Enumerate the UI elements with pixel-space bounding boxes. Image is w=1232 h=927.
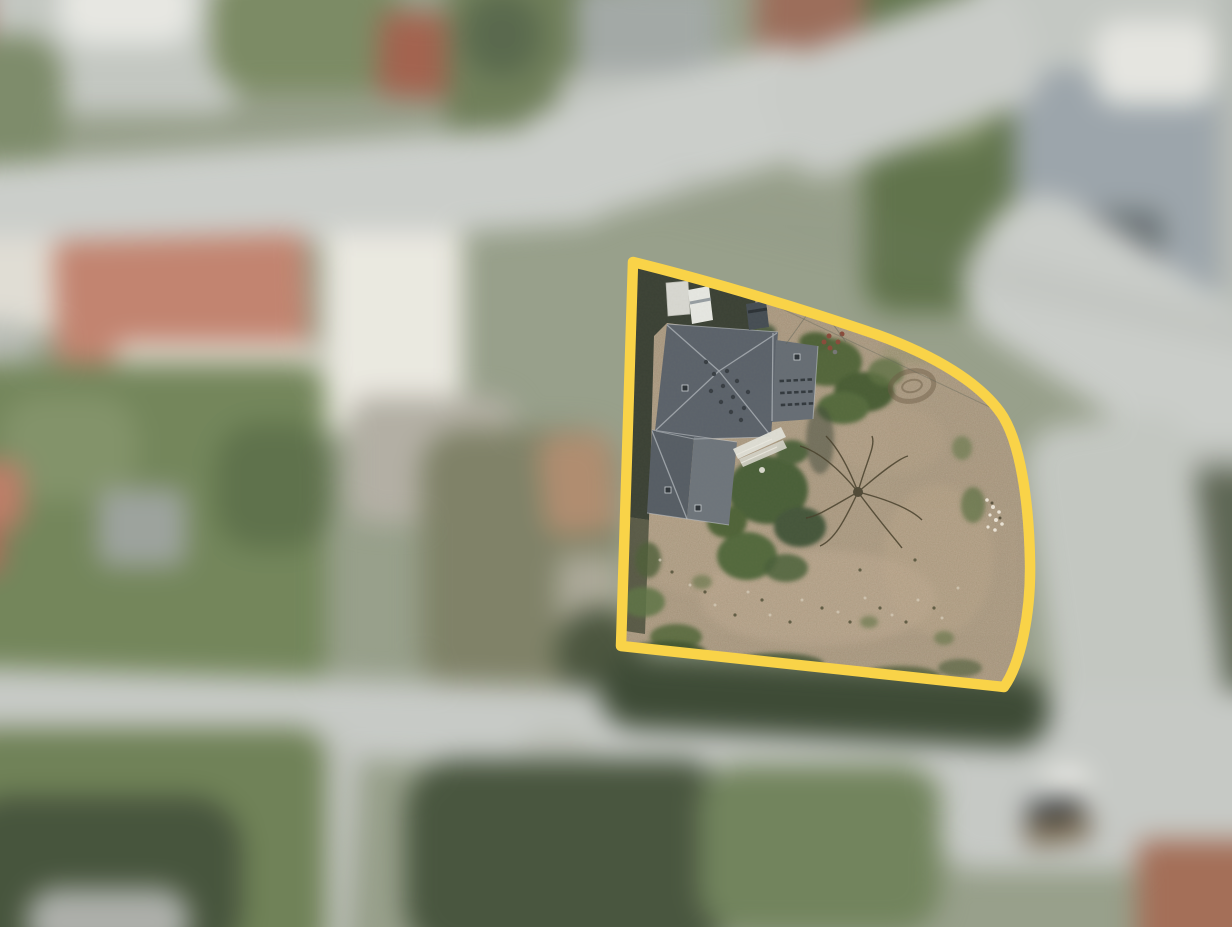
trees-bottom-center: [405, 759, 730, 927]
gray-building-top-middle: [576, 0, 718, 77]
blurred-aerial-background: [0, 0, 1232, 927]
trees-on-lawn: [216, 423, 331, 549]
brick-building-bottom-right: [1137, 840, 1232, 927]
gray-blob-bottom-left: [27, 888, 190, 927]
gray-right-edge-top: [1219, 0, 1232, 344]
red-roof-left-edge-mid-2: [0, 523, 3, 573]
tan-roof-left-of-parcel: [536, 430, 620, 537]
white-roof-right-top: [1095, 21, 1216, 105]
aerial-photo-stage: Top-down aerial photo of a residential n…: [0, 0, 1232, 927]
white-roof-top-left: [58, 0, 195, 45]
lawn-top-left: [0, 35, 64, 171]
lawn-top-mid-left: [211, 0, 400, 92]
lawn-bottom-center-right: [699, 764, 941, 927]
gray-shed-on-lawn: [97, 488, 186, 567]
red-roof-left-edge-mid-1: [0, 462, 24, 527]
trees-top-middle: [463, 0, 542, 77]
